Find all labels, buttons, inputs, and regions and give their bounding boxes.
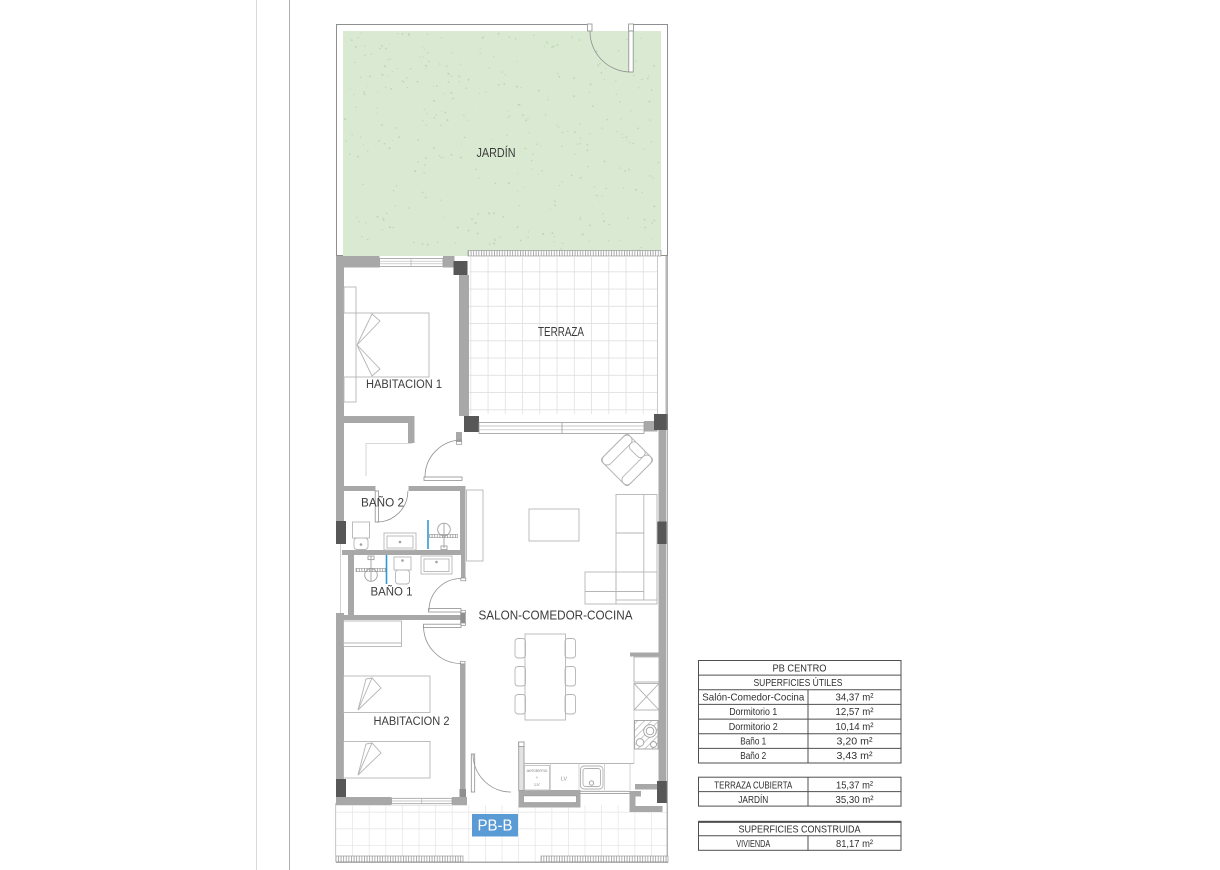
svg-text:SALON-COMEDOR-COCINA: SALON-COMEDOR-COCINA — [479, 609, 634, 623]
svg-text:15,37 m²: 15,37 m² — [836, 779, 873, 791]
svg-text:JARDÍN: JARDÍN — [477, 145, 516, 160]
svg-text:3,20 m²: 3,20 m² — [837, 736, 873, 748]
svg-text:LV: LV — [534, 782, 540, 787]
svg-text:TERRAZA: TERRAZA — [538, 325, 585, 339]
svg-text:34,37 m²: 34,37 m² — [836, 692, 874, 704]
svg-text:PB CENTRO: PB CENTRO — [773, 663, 827, 675]
svg-text:SUPERFICIES CONSTRUIDA: SUPERFICIES CONSTRUIDA — [739, 824, 861, 836]
svg-text:JARDÍN: JARDÍN — [738, 793, 768, 806]
svg-text:Dormitorio 2: Dormitorio 2 — [729, 721, 778, 733]
svg-text:81,17 m²: 81,17 m² — [836, 838, 873, 850]
svg-text:Dormitorio 1: Dormitorio 1 — [729, 706, 777, 718]
svg-text:3,43 m²: 3,43 m² — [837, 750, 873, 762]
svg-text:Baño 2: Baño 2 — [740, 750, 766, 762]
svg-text:Salón-Comedor-Cocina: Salón-Comedor-Cocina — [702, 692, 804, 704]
svg-text:BAÑO 1: BAÑO 1 — [371, 586, 413, 599]
svg-text:BAÑO 2: BAÑO 2 — [361, 497, 404, 510]
svg-text:LV: LV — [561, 777, 567, 783]
svg-text:+: + — [536, 775, 539, 780]
svg-text:35,30 m²: 35,30 m² — [836, 794, 874, 806]
svg-text:TERRAZA CUBIERTA: TERRAZA CUBIERTA — [714, 779, 792, 791]
svg-text:10,14 m²: 10,14 m² — [836, 721, 874, 733]
svg-text:HABITACION 1: HABITACION 1 — [366, 379, 442, 391]
svg-text:Baño 1: Baño 1 — [740, 736, 766, 748]
svg-text:HABITACION 2: HABITACION 2 — [374, 716, 450, 728]
svg-text:aerotermo: aerotermo — [527, 768, 548, 773]
svg-text:SUPERFICIES ÚTILES: SUPERFICIES ÚTILES — [754, 676, 843, 689]
svg-text:12,57 m²: 12,57 m² — [836, 706, 874, 718]
svg-text:VIVIENDA: VIVIENDA — [736, 838, 770, 850]
svg-text:PB-B: PB-B — [478, 818, 513, 835]
